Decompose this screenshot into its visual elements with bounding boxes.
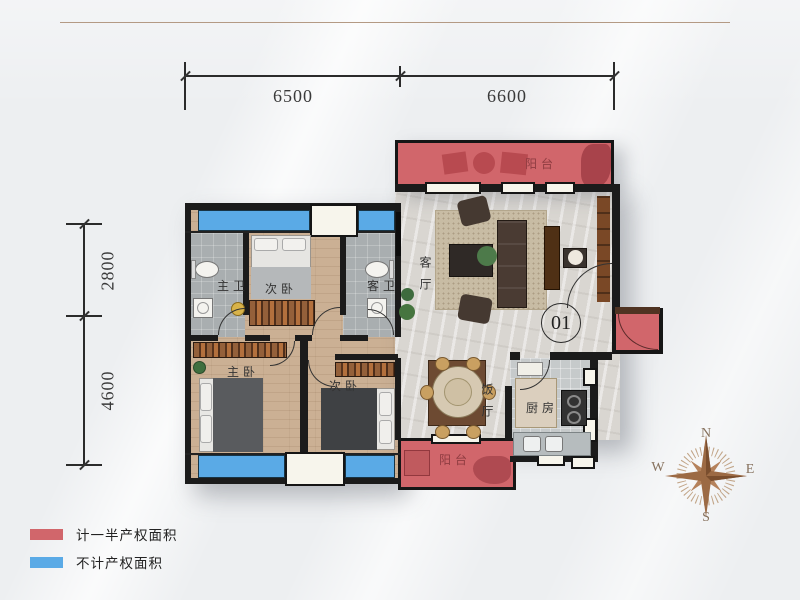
unit-number-badge: 01 <box>541 303 581 343</box>
pillow <box>200 383 212 411</box>
burner <box>567 395 581 408</box>
tv-icon <box>396 212 401 256</box>
wall <box>505 386 512 440</box>
window <box>545 182 575 194</box>
compass-west-label: W <box>650 461 666 475</box>
legend-label: 计一半产权面积 <box>76 524 178 544</box>
toilet-tank <box>389 260 394 279</box>
wall <box>185 203 191 484</box>
window <box>285 452 345 486</box>
bed-blanket <box>213 378 263 452</box>
balcony-cushion <box>442 151 469 174</box>
wall <box>340 335 368 341</box>
room-label-living: 客厅 <box>419 246 431 310</box>
legend-item-excluded-area: 不计产权面积 <box>30 552 178 572</box>
toilet-tank <box>191 260 196 279</box>
sofa <box>497 220 527 308</box>
room-label-balcony-bottom: 阳台 <box>431 454 479 466</box>
chair <box>466 357 481 371</box>
toilet-icon <box>195 261 219 278</box>
chair <box>435 425 450 439</box>
wall <box>510 352 520 360</box>
entry-threshold <box>615 307 660 314</box>
chair <box>435 357 450 371</box>
window <box>310 204 358 237</box>
dimension-line <box>83 224 85 465</box>
decorative-top-rule <box>60 22 730 23</box>
window <box>425 182 481 194</box>
bed-blanket <box>321 388 377 450</box>
floor-plan: 01 阳台 客厅 主卫 次卧 客卫 主卧 次卧 饭厅 厨房 阳台 <box>185 140 665 492</box>
toilet-icon <box>365 261 389 278</box>
pillow <box>254 238 278 251</box>
plant-icon <box>477 246 497 266</box>
balcony-plate <box>473 152 495 174</box>
dimension-value-left-lower: 4600 <box>98 361 119 421</box>
bay-window-strip <box>198 210 310 231</box>
window <box>571 456 595 469</box>
room-label-bedroom-top: 次卧 <box>259 283 303 295</box>
pillow <box>282 238 306 251</box>
kitchen-sink <box>545 436 563 452</box>
legend-swatch-blue <box>30 557 63 568</box>
lamp-icon <box>568 250 583 265</box>
wall <box>245 335 270 341</box>
wall <box>185 231 400 233</box>
room-label-guest-bath: 客卫 <box>361 280 405 292</box>
compass: N E S W <box>646 421 766 531</box>
dimension-value-top-left: 6500 <box>248 86 338 107</box>
dimension-tick <box>184 62 186 110</box>
room-label-bedroom-bottom: 次卧 <box>323 380 367 392</box>
wardrobe <box>249 300 315 326</box>
bay-window-strip <box>345 455 395 478</box>
balcony-plant <box>581 144 611 187</box>
dining-table-center <box>444 378 472 406</box>
wall <box>185 203 400 210</box>
chair <box>420 385 434 400</box>
compass-south-label: S <box>698 511 714 525</box>
pillow <box>200 415 212 443</box>
wall <box>340 233 346 315</box>
window <box>583 368 597 386</box>
dimension-tick <box>613 62 615 110</box>
legend-swatch-red <box>30 529 63 540</box>
sink-basin <box>197 302 209 314</box>
bay-window-strip <box>358 210 395 231</box>
dimension-value-top-right: 6600 <box>462 86 552 107</box>
wall <box>550 352 612 360</box>
kitchen-sink <box>523 436 541 452</box>
burner <box>567 411 581 424</box>
wall <box>395 358 401 440</box>
balcony-washbasin <box>404 450 430 476</box>
pillow <box>379 420 392 444</box>
plant-icon <box>399 304 415 320</box>
legend: 计一半产权面积 不计产权面积 <box>30 524 178 580</box>
wall <box>612 190 620 310</box>
room-label-master-bath: 主卫 <box>213 280 253 292</box>
room-label-kitchen: 厨房 <box>517 402 567 414</box>
legend-label: 不计产权面积 <box>76 552 163 572</box>
plant-icon <box>193 361 206 374</box>
compass-north-label: N <box>698 427 714 441</box>
armchair <box>457 293 493 324</box>
dimension-value-left-upper: 2800 <box>98 241 119 301</box>
bay-window-strip <box>198 455 285 478</box>
wall <box>300 341 308 452</box>
legend-item-half-area: 计一半产权面积 <box>30 524 178 544</box>
tv-console <box>544 226 560 290</box>
room-label-dining: 饭厅 <box>481 376 493 434</box>
compass-east-label: E <box>742 463 758 477</box>
unit-number: 01 <box>551 312 571 335</box>
wall <box>335 354 398 360</box>
room-label-balcony-top: 阳台 <box>517 158 565 170</box>
pillow <box>379 392 392 416</box>
wardrobe <box>335 362 395 377</box>
chair <box>466 425 481 439</box>
wall <box>189 335 218 341</box>
window <box>501 182 535 194</box>
room-label-master-bedroom: 主卧 <box>221 366 265 378</box>
